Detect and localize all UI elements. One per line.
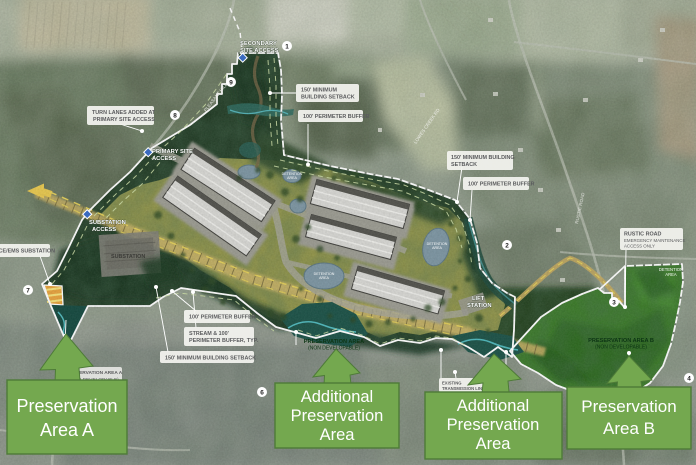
svg-text:AREA: AREA (665, 272, 677, 277)
svg-text:BUILDING SETBACK: BUILDING SETBACK (301, 95, 355, 101)
svg-text:AREA: AREA (319, 276, 329, 280)
svg-text:Preservation: Preservation (581, 397, 676, 416)
svg-text:STATION: STATION (467, 303, 492, 309)
svg-text:LIFT: LIFT (472, 296, 485, 302)
svg-text:100' PERIMETER BUFFER: 100' PERIMETER BUFFER (189, 315, 256, 321)
svg-text:PRIMARY SITE ACCESS: PRIMARY SITE ACCESS (93, 117, 155, 123)
svg-text:TRANSMISSION LINE: TRANSMISSION LINE (442, 386, 485, 391)
svg-text:TURN LANES ADDED AT: TURN LANES ADDED AT (92, 110, 156, 116)
svg-text:8: 8 (173, 112, 177, 119)
svg-text:3: 3 (612, 299, 616, 306)
svg-text:ACCESS: ACCESS (152, 156, 176, 162)
svg-text:EXISTING: EXISTING (442, 381, 462, 386)
svg-text:Preservation: Preservation (291, 407, 384, 425)
svg-text:9: 9 (229, 79, 233, 86)
svg-text:ACCESS ONLY: ACCESS ONLY (624, 244, 655, 249)
svg-text:100' PERIMETER BUFFER: 100' PERIMETER BUFFER (468, 182, 535, 188)
svg-text:PRIMARY SITE: PRIMARY SITE (152, 149, 193, 155)
svg-text:150' MINIMUM BUILDING SETBACK: 150' MINIMUM BUILDING SETBACK (165, 355, 256, 361)
svg-text:POLICE/EMS SUBSTATION: POLICE/EMS SUBSTATION (0, 249, 55, 255)
svg-text:Area A: Area A (40, 420, 94, 440)
svg-text:Area B: Area B (603, 419, 655, 438)
svg-text:PERIMETER BUFFER, TYP.: PERIMETER BUFFER, TYP. (189, 338, 259, 344)
svg-text:ACCESS: ACCESS (92, 227, 116, 233)
svg-text:AREA: AREA (287, 176, 297, 180)
svg-text:2: 2 (505, 242, 509, 249)
svg-text:SUBSTATION: SUBSTATION (111, 254, 145, 260)
svg-text:Additional: Additional (301, 388, 373, 406)
svg-text:100' PERIMETER BUFFER: 100' PERIMETER BUFFER (303, 114, 370, 120)
svg-text:Preservation: Preservation (447, 416, 540, 434)
svg-text:(NON DEVELOPABLE): (NON DEVELOPABLE) (595, 345, 647, 351)
svg-text:150' MINIMUM: 150' MINIMUM (301, 88, 338, 94)
svg-text:PRESERVATION AREA: PRESERVATION AREA (304, 339, 364, 345)
svg-text:SETBACK: SETBACK (451, 162, 477, 168)
svg-text:4: 4 (687, 375, 691, 382)
svg-text:SECONDARY: SECONDARY (240, 41, 277, 47)
svg-text:SITE ACCESS: SITE ACCESS (240, 48, 279, 54)
svg-text:6: 6 (260, 389, 264, 396)
svg-text:STREAM & 100': STREAM & 100' (189, 331, 229, 337)
svg-text:Area: Area (320, 426, 356, 444)
svg-text:Area: Area (476, 435, 512, 453)
svg-text:1: 1 (285, 43, 289, 50)
svg-text:PRESERVATION AREA B: PRESERVATION AREA B (588, 338, 654, 344)
svg-text:AREA: AREA (432, 246, 442, 250)
svg-text:RUSTIC ROAD: RUSTIC ROAD (624, 232, 662, 238)
svg-text:150' MINIMUM BUILDING: 150' MINIMUM BUILDING (451, 155, 515, 161)
svg-text:Preservation: Preservation (16, 396, 117, 416)
svg-text:SUBSTATION: SUBSTATION (89, 220, 126, 226)
svg-text:7: 7 (26, 287, 30, 294)
svg-text:Additional: Additional (457, 397, 529, 415)
svg-text:EMERGENCY MAINTENANCE: EMERGENCY MAINTENANCE (624, 238, 685, 243)
